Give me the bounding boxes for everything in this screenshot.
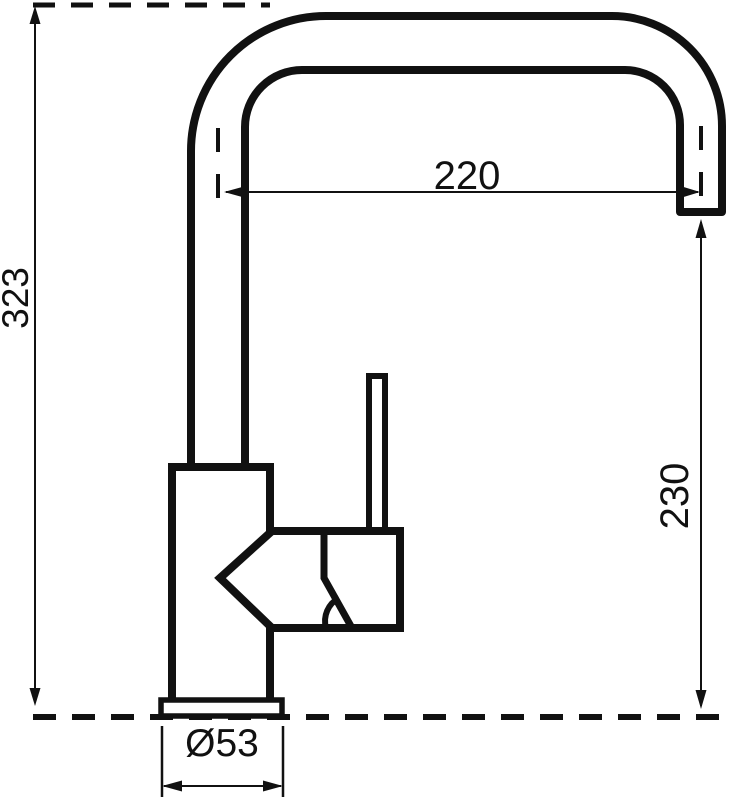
dim-label-overall-height: 323 — [0, 267, 36, 329]
dim-label-spout-reach: 220 — [434, 154, 501, 198]
drawing-svg: 323 220 230 Ø53 — [0, 0, 738, 800]
dim-outlet-height-arrow-down — [696, 690, 707, 709]
dim-label-spout-outlet-height: 230 — [653, 463, 697, 530]
handle-lever — [369, 376, 385, 534]
technical-drawing: 323 220 230 Ø53 — [0, 0, 738, 800]
dimension-labels: 323 220 230 Ø53 — [0, 154, 697, 765]
dim-overall-height-arrow-down — [30, 688, 41, 706]
dim-outlet-height-arrow-up — [696, 219, 707, 238]
dim-label-base-diameter: Ø53 — [185, 722, 259, 765]
dim-base-diameter-arrow-left — [162, 781, 182, 792]
base-flange — [161, 700, 282, 716]
dim-overall-height-arrow-up — [30, 6, 41, 24]
spout-pipe — [191, 16, 722, 471]
dim-base-diameter-arrow-right — [263, 781, 283, 792]
faucet-outline — [161, 16, 722, 716]
